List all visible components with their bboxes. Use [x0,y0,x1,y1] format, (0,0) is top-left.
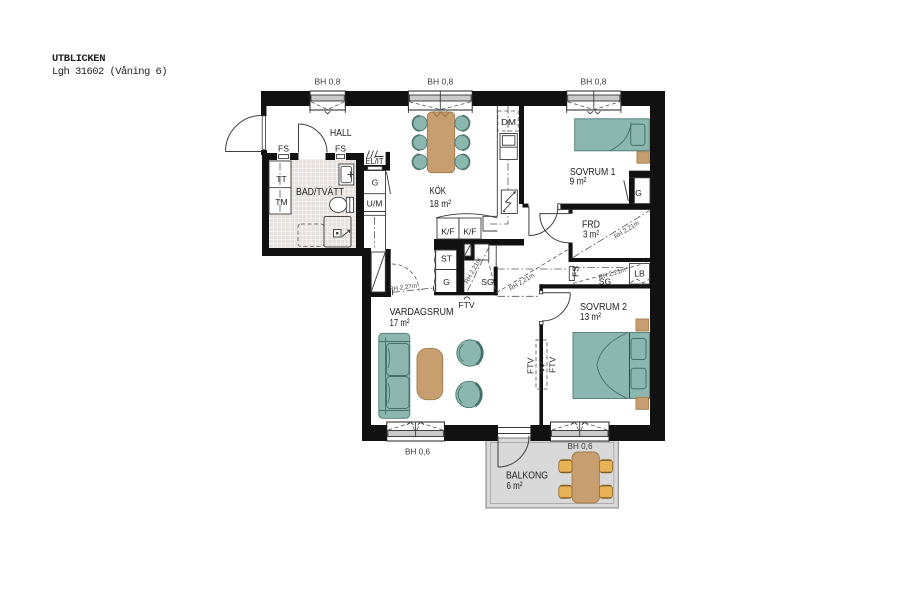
svg-text:BH 0,8: BH 0,8 [427,78,454,87]
svg-text:FTV: FTV [458,300,474,310]
svg-text:17 m²: 17 m² [390,318,411,329]
svg-text:3 m²: 3 m² [583,230,600,241]
svg-text:FS: FS [571,266,581,277]
svg-text:LB: LB [634,269,645,279]
svg-text:ST: ST [441,254,453,264]
svg-text:FTV: FTV [548,357,558,373]
svg-text:SG: SG [599,277,612,287]
svg-text:K/F: K/F [441,227,454,237]
svg-text:TT: TT [276,174,287,184]
svg-text:13 m²: 13 m² [580,312,602,323]
svg-text:BH 0,8: BH 0,8 [581,78,608,87]
svg-text:BH 0,6: BH 0,6 [568,442,594,451]
svg-text:Lgh 31602 (Våning 6): Lgh 31602 (Våning 6) [52,65,167,78]
svg-text:BH 0,6: BH 0,6 [405,448,431,457]
svg-text:BAD/TVÄTT: BAD/TVÄTT [296,186,344,198]
svg-text:G: G [635,188,642,198]
svg-text:BALKONG: BALKONG [506,470,548,482]
svg-text:6 m²: 6 m² [507,481,524,492]
svg-text:HALL: HALL [330,127,352,139]
svg-text:VARDAGSRUM: VARDAGSRUM [390,306,454,318]
svg-text:FS: FS [278,144,289,154]
svg-text:G: G [443,277,450,287]
svg-text:TM: TM [275,197,287,207]
svg-text:UTBLICKEN: UTBLICKEN [52,53,105,65]
svg-text:U/M: U/M [367,199,383,209]
svg-text:FTV: FTV [526,358,536,374]
svg-text:SG: SG [481,277,494,287]
svg-text:G: G [372,178,379,188]
svg-text:EL/IT: EL/IT [366,156,385,166]
svg-text:BH 0,8: BH 0,8 [315,78,342,87]
svg-text:KÖK: KÖK [430,185,447,197]
svg-text:9 m²: 9 m² [570,177,588,188]
svg-text:K/F: K/F [463,227,476,237]
svg-text:18 m²: 18 m² [430,199,452,210]
svg-text:FS: FS [335,144,346,154]
svg-text:DM: DM [501,117,516,127]
